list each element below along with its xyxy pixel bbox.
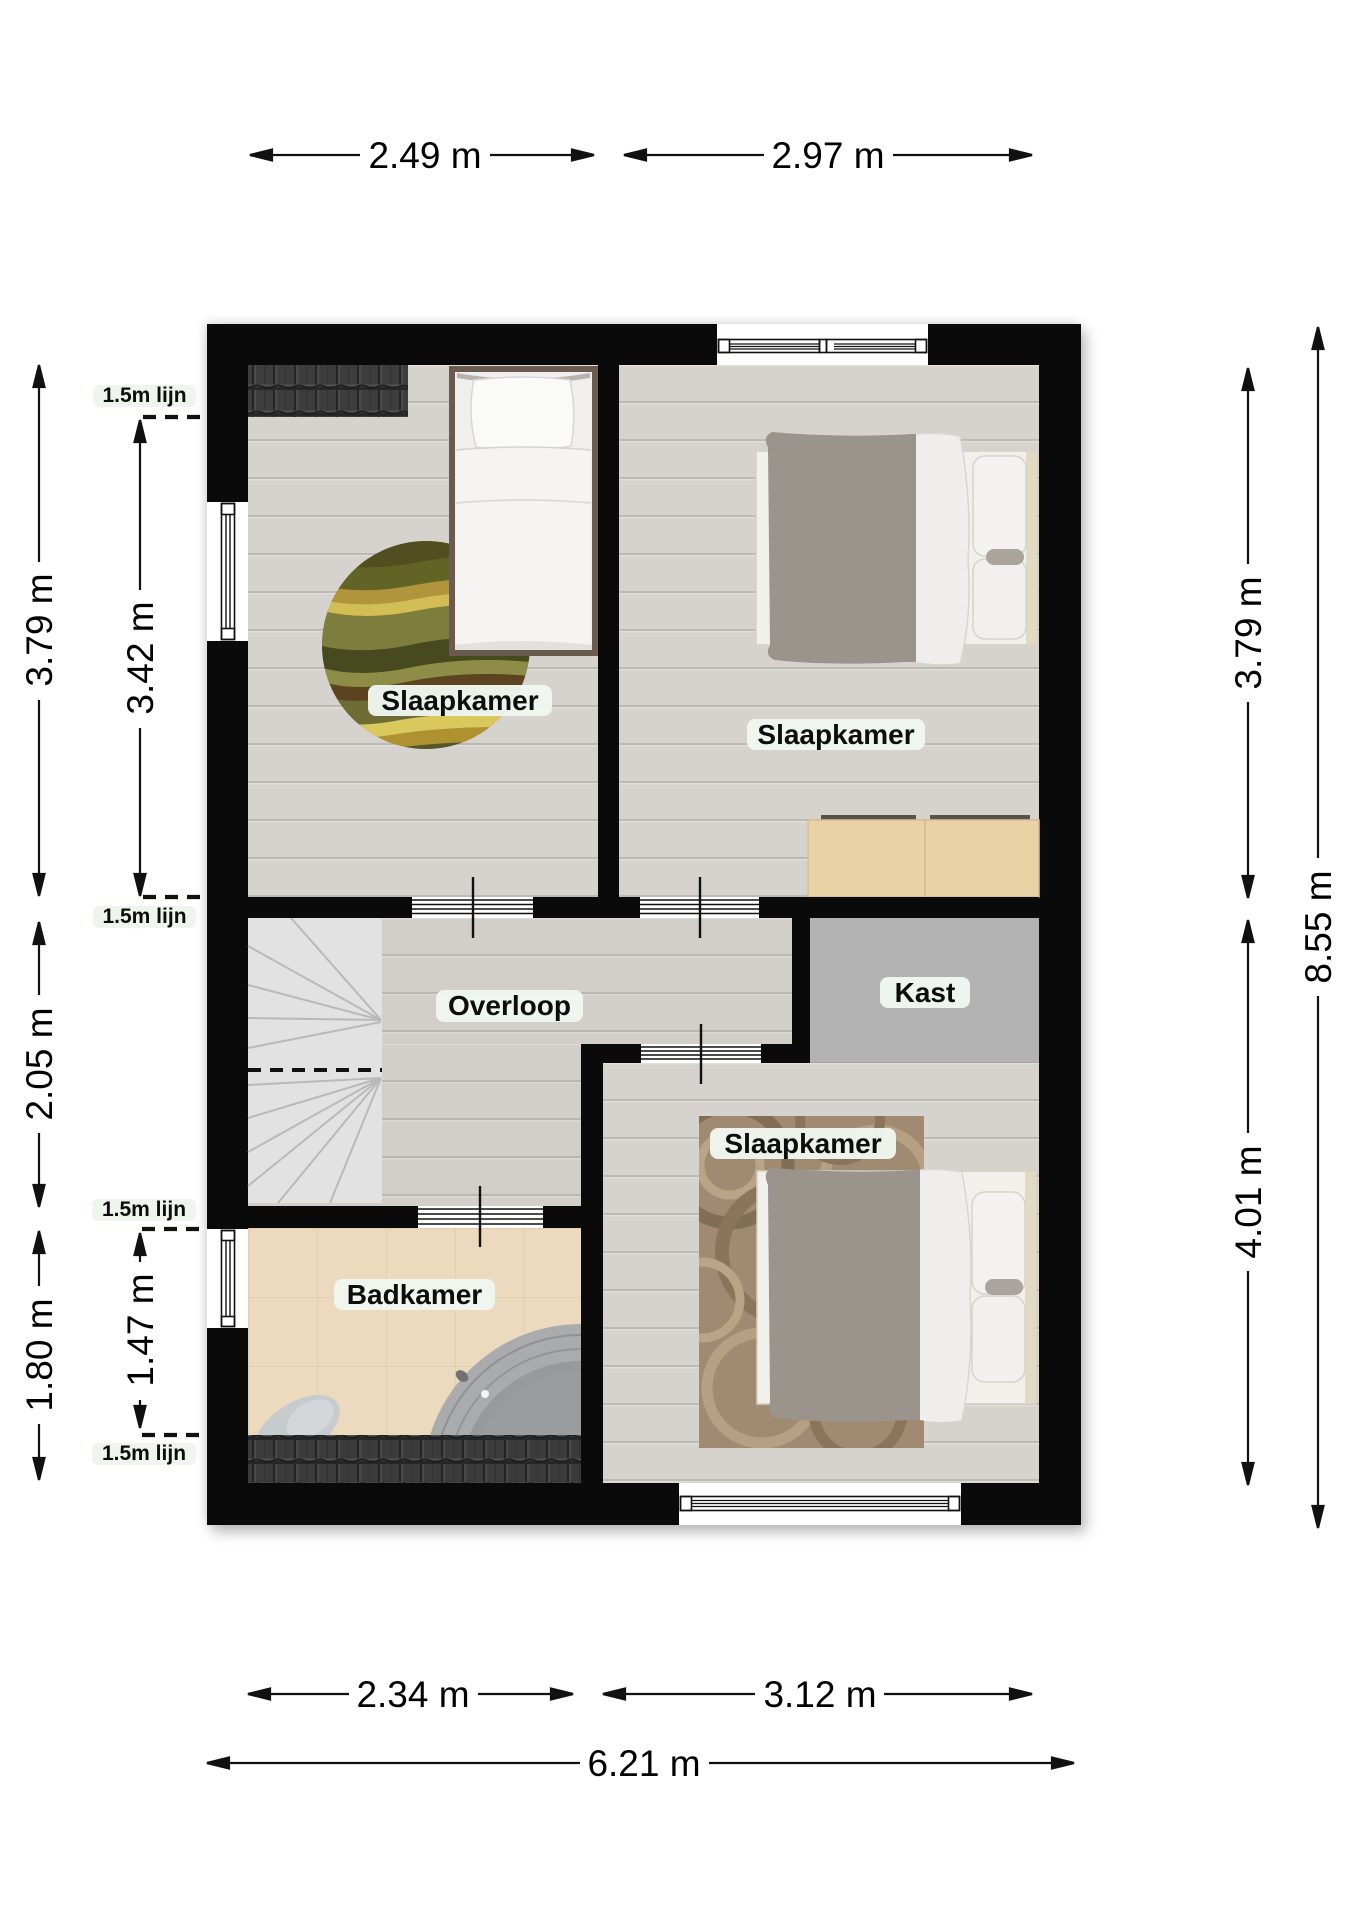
svg-text:1.80 m: 1.80 m xyxy=(19,1298,60,1411)
svg-text:6.21 m: 6.21 m xyxy=(587,1743,700,1784)
svg-text:2.49 m: 2.49 m xyxy=(368,135,481,176)
svg-text:2.05 m: 2.05 m xyxy=(19,1007,60,1120)
svg-text:3.12 m: 3.12 m xyxy=(763,1674,876,1715)
svg-text:3.79 m: 3.79 m xyxy=(19,573,60,686)
svg-text:3.79 m: 3.79 m xyxy=(1228,576,1269,689)
svg-text:8.55 m: 8.55 m xyxy=(1298,870,1339,983)
svg-text:2.97 m: 2.97 m xyxy=(771,135,884,176)
svg-text:1.47 m: 1.47 m xyxy=(120,1273,161,1386)
svg-text:2.34 m: 2.34 m xyxy=(356,1674,469,1715)
svg-text:3.42 m: 3.42 m xyxy=(120,601,161,714)
svg-text:4.01 m: 4.01 m xyxy=(1228,1145,1269,1258)
